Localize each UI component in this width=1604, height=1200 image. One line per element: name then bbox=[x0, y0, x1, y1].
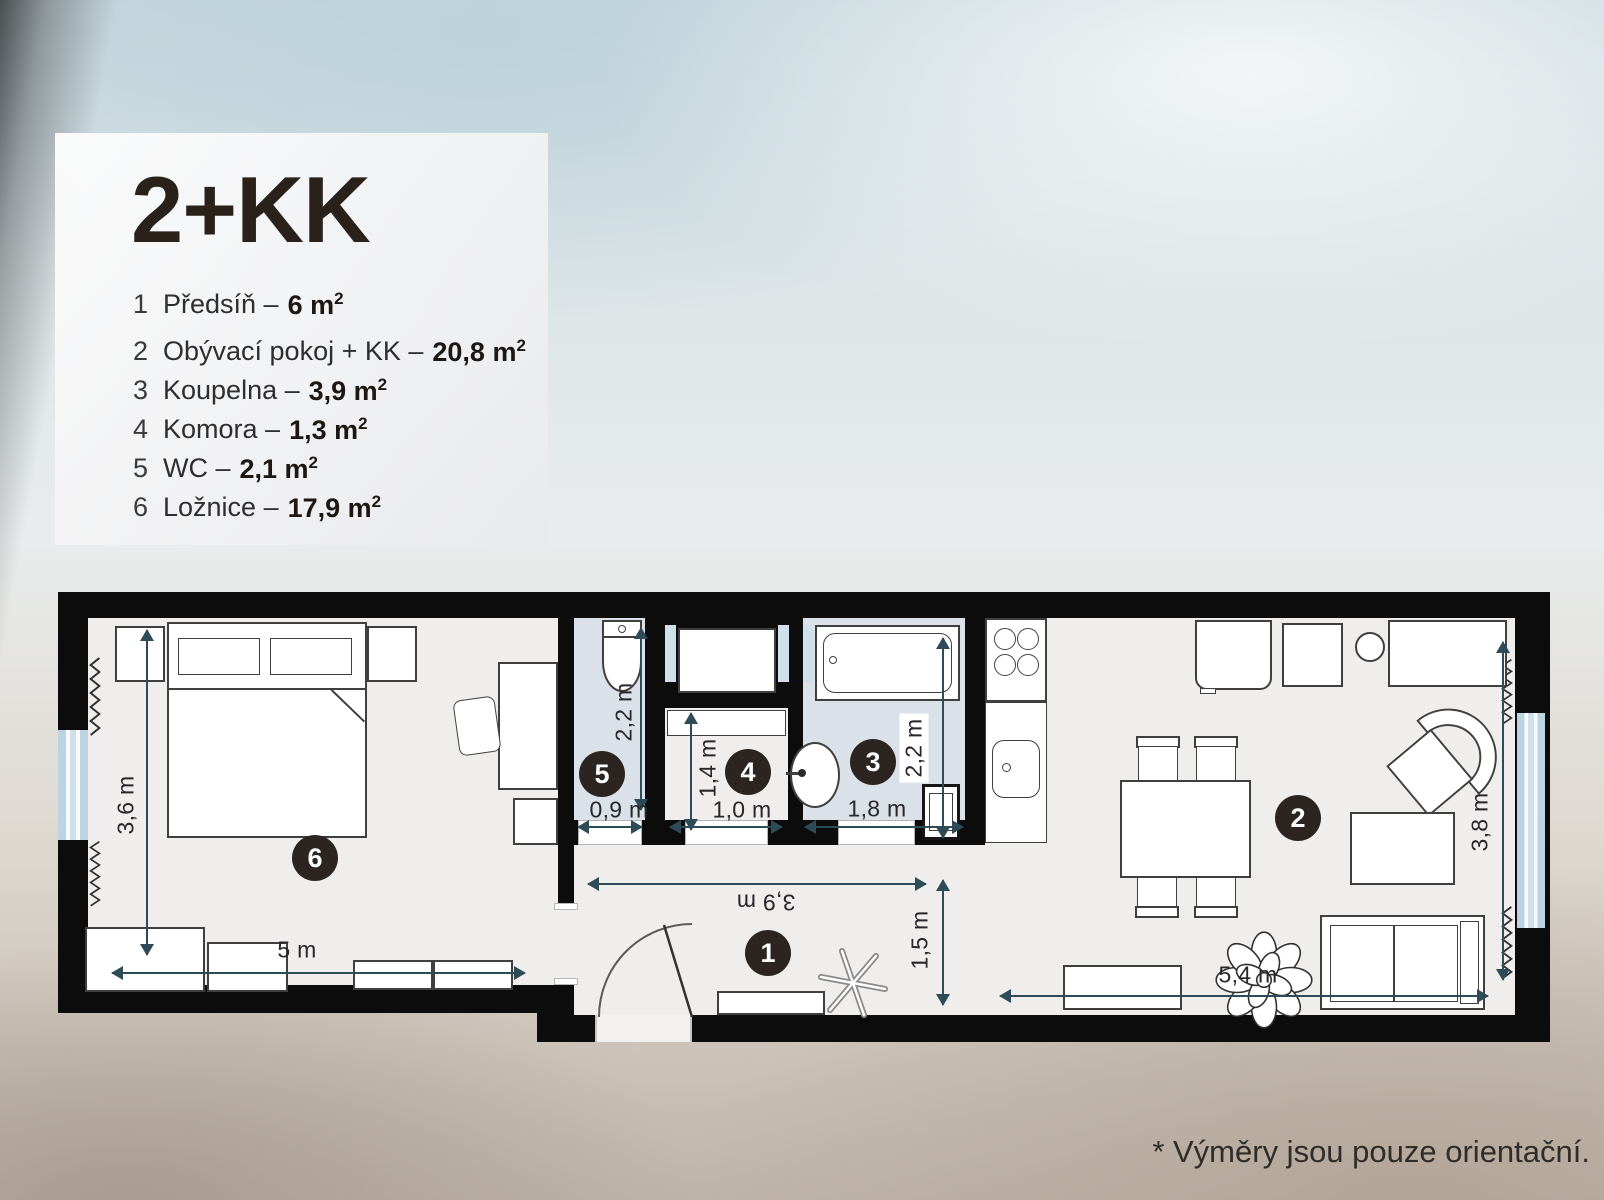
desk-symbol bbox=[498, 662, 558, 790]
floor-plan: 1 2 3 4 5 6 3,6 m 5 m 2,2 m 0,9 m 1,4 m … bbox=[58, 592, 1550, 1042]
dimension-arrow bbox=[942, 880, 944, 1005]
toilet-button bbox=[618, 625, 626, 633]
dimension-arrow bbox=[112, 972, 525, 974]
bathtub-drain bbox=[829, 656, 837, 664]
radiator-icon bbox=[88, 656, 102, 740]
page: { "legend": { "title": "2+KK", "items": … bbox=[0, 0, 1604, 1200]
legend-item-hall: 1Předsíň –6 m2 bbox=[133, 289, 526, 328]
dresser-symbol bbox=[207, 942, 288, 992]
bedroom-window bbox=[58, 730, 88, 840]
burner-icon bbox=[994, 654, 1016, 676]
bed-symbol bbox=[167, 688, 367, 838]
dimension-label-storage-height: 1,4 m bbox=[695, 738, 722, 797]
dimension-label-wc-width: 0,9 m bbox=[589, 797, 648, 824]
legend-item-wc: 5WC –2,1 m2 bbox=[133, 453, 526, 492]
legend-item-bedroom: 6Ložnice –17,9 m2 bbox=[133, 492, 526, 531]
desk-chair-symbol bbox=[452, 695, 501, 756]
dimension-arrow bbox=[690, 713, 692, 830]
dimension-label-hall-width: 3,9 m bbox=[736, 889, 795, 916]
sofa-cushion bbox=[1330, 925, 1394, 1002]
dimension-arrow bbox=[640, 628, 642, 810]
dimension-arrow bbox=[578, 826, 642, 828]
niche-glass bbox=[778, 625, 789, 682]
plan-title: 2+KK bbox=[131, 163, 370, 257]
radiator-icon bbox=[88, 840, 102, 910]
legend-item-bath: 3Koupelna –3,9 m2 bbox=[133, 375, 526, 414]
coat-rack-symbol bbox=[818, 948, 888, 1018]
wardrobe-symbol bbox=[85, 927, 205, 992]
room-badge-hall: 1 bbox=[745, 930, 791, 976]
dimension-arrow bbox=[670, 826, 782, 828]
chair-symbol bbox=[1196, 746, 1236, 782]
niche-cabinet-symbol bbox=[678, 628, 776, 693]
dining-table-symbol bbox=[1120, 780, 1251, 878]
sofa-cushion bbox=[1394, 925, 1458, 1002]
cabinet-symbol bbox=[1282, 623, 1343, 687]
fridge-symbol bbox=[1195, 620, 1272, 690]
burner-icon bbox=[1017, 628, 1039, 650]
floor-lamp-symbol bbox=[1355, 632, 1385, 662]
sink-symbol bbox=[790, 742, 840, 808]
bench-symbol bbox=[717, 991, 825, 1015]
dimension-label-hall-height: 1,5 m bbox=[907, 910, 934, 969]
fridge-handle bbox=[1200, 688, 1216, 694]
disclaimer-text: * Výměry jsou pouze orientační. bbox=[1152, 1134, 1590, 1170]
niche-glass bbox=[804, 625, 814, 682]
room-badge-bath: 3 bbox=[850, 739, 896, 785]
legend-item-living: 2Obývací pokoj + KK –20,8 m2 bbox=[133, 336, 526, 375]
sink-tap-dot bbox=[798, 769, 806, 777]
shelf-symbol bbox=[513, 798, 558, 845]
dimension-label-storage-width: 1,0 m bbox=[712, 797, 771, 824]
pillow-symbol bbox=[178, 638, 260, 675]
room-badge-living: 2 bbox=[1275, 795, 1321, 841]
dimension-arrow bbox=[1000, 995, 1488, 997]
pillow-symbol bbox=[270, 638, 352, 675]
dimension-label-living-height: 3,8 m bbox=[1467, 792, 1494, 851]
dimension-arrow bbox=[942, 638, 944, 838]
dimension-label-bath-height: 2,2 m bbox=[900, 713, 929, 782]
coffee-table-symbol bbox=[1350, 812, 1455, 885]
dimension-label-bedroom-height: 3,6 m bbox=[113, 775, 140, 834]
legend-card: 2+KK 1Předsíň –6 m2 2Obývací pokoj + KK … bbox=[55, 133, 548, 545]
entry-door-symbol bbox=[568, 887, 708, 1022]
dimension-arrow bbox=[588, 883, 926, 885]
dimension-label-wc-height: 2,2 m bbox=[611, 682, 638, 741]
bathtub-inner bbox=[823, 633, 952, 693]
burner-icon bbox=[1017, 654, 1039, 676]
chair-back bbox=[1194, 906, 1238, 918]
dimension-label-bath-width: 1,8 m bbox=[847, 796, 906, 823]
dimension-arrow bbox=[146, 630, 148, 955]
dresser-symbol bbox=[353, 960, 433, 990]
chair-back bbox=[1135, 906, 1179, 918]
legend-item-storage: 4Komora –1,3 m2 bbox=[133, 414, 526, 453]
kitchen-sink-symbol bbox=[992, 740, 1040, 798]
legend-list: 1Předsíň –6 m2 2Obývací pokoj + KK –20,8… bbox=[133, 289, 526, 531]
niche-glass bbox=[665, 625, 676, 682]
burner-icon bbox=[994, 628, 1016, 650]
tv-stand-symbol bbox=[1063, 965, 1182, 1010]
dimension-label-bedroom-width: 5 m bbox=[277, 937, 316, 964]
bath-door-opening bbox=[838, 820, 915, 845]
room-badge-wc: 5 bbox=[579, 751, 625, 797]
chair-symbol bbox=[1138, 746, 1178, 782]
room-badge-storage: 4 bbox=[725, 749, 771, 795]
dresser-symbol bbox=[433, 960, 513, 990]
dimension-arrow bbox=[1502, 642, 1504, 980]
kitchen-sink-drain bbox=[1002, 763, 1011, 772]
dimension-label-living-width: 5,4 m bbox=[1218, 962, 1277, 989]
room-badge-bedroom: 6 bbox=[292, 835, 338, 881]
nightstand-symbol bbox=[367, 626, 417, 682]
